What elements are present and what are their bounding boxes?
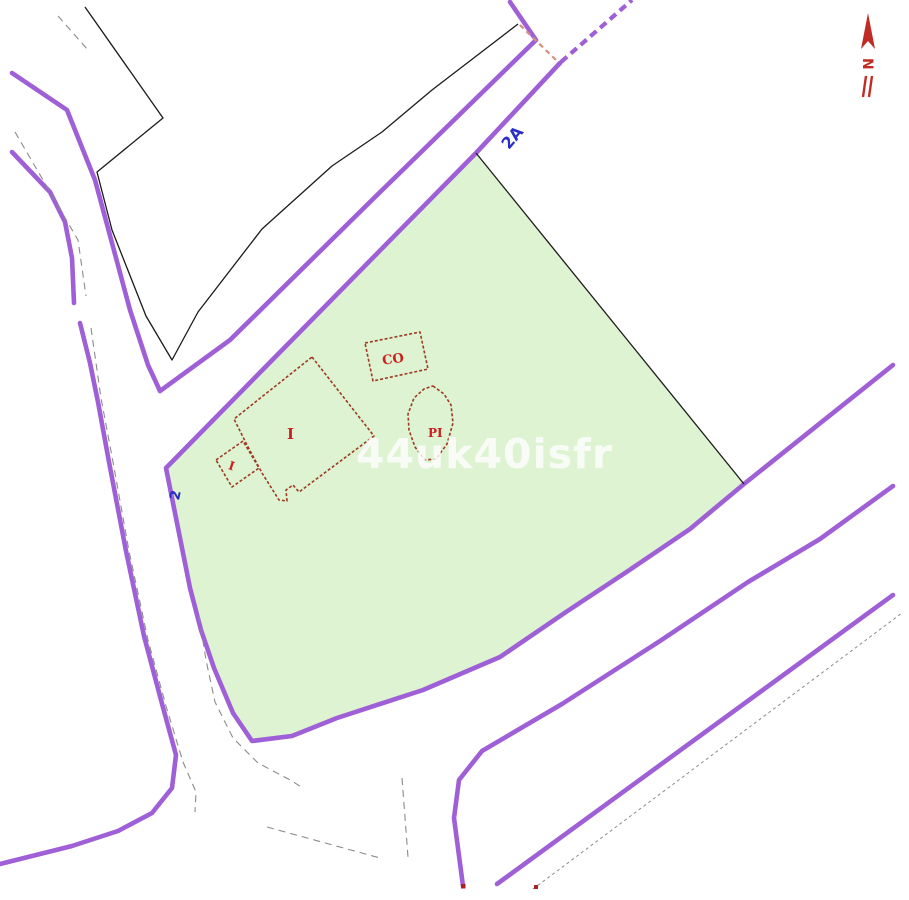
boundary-dot-right xyxy=(534,885,538,889)
building-main-label: I xyxy=(287,425,294,443)
watermark-text: 44uk40isfr xyxy=(356,430,613,478)
boundary-dot-left xyxy=(461,884,466,889)
map-canvas: I I CO PI 2A 2 44uk40isfr N xyxy=(0,0,909,900)
cadastral-map: I I CO PI 2A 2 44uk40isfr N xyxy=(0,0,909,900)
building-co-label: CO xyxy=(381,351,405,369)
north-arrow-letter: N xyxy=(859,58,875,70)
